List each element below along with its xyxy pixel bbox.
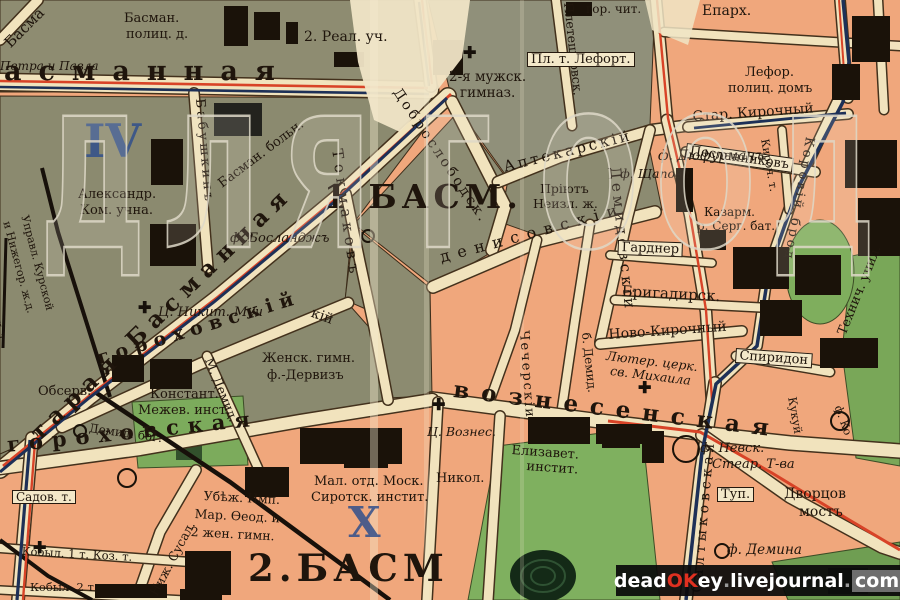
district-label-2-basm: 2.БАСМ bbox=[248, 550, 449, 587]
poi-lefort-theatre: Пл. т. Лефорт. bbox=[527, 52, 635, 67]
watermark-letter: О bbox=[655, 96, 756, 276]
poi-dvortsovy-bridge-2: мостъ bbox=[799, 505, 843, 519]
church-cross-icon: ✚ bbox=[138, 300, 151, 316]
poi-mezhevoy-institute-2: Межев. инст. bbox=[138, 404, 230, 417]
poi-dervis-gymnasium-2: ф.-Дервизъ bbox=[267, 369, 344, 382]
watermark-letter: Д bbox=[40, 96, 146, 276]
church-cross-icon: ✚ bbox=[463, 45, 476, 61]
credit-tld: com bbox=[852, 570, 900, 592]
credit-text: dead bbox=[614, 570, 667, 592]
watermark-letter: О bbox=[538, 96, 639, 276]
poi-kobyl-2: Кобыл. 2 т. bbox=[30, 582, 98, 594]
poi-real-school: 2. Реал. уч. bbox=[304, 30, 388, 44]
poi-nikita-church: Ц. Никит. Муч bbox=[158, 306, 263, 319]
church-cross-icon: ✚ bbox=[638, 380, 651, 396]
street-label-tupik: Туп. bbox=[717, 487, 754, 502]
poi-sadovaya: Садов. т. bbox=[12, 490, 76, 504]
district-numeral-x: X bbox=[348, 502, 381, 544]
poi-nevsky-stearin-1: ф. Невск. bbox=[700, 442, 764, 455]
credit-watermark: deadOKey.livejournal.com bbox=[616, 565, 900, 596]
watermark-letter: Я bbox=[280, 96, 371, 276]
poi-city-reading-room: гор. чит. bbox=[586, 3, 641, 15]
church-cross-icon: ✚ bbox=[33, 540, 46, 556]
watermark-letter: Г bbox=[416, 96, 492, 276]
poi-basmannaya-police-2: полиц. д. bbox=[126, 28, 188, 41]
poi-observatory: Обсерв. bbox=[38, 385, 91, 398]
poi-demin-factory: ф. Демина bbox=[727, 544, 802, 558]
watermark-letter: Л bbox=[162, 96, 261, 276]
poi-mezhevoy-institute-1: Констант. bbox=[150, 388, 219, 401]
poi-nevsky-stearin-2: Стеар. Т-ва bbox=[712, 458, 795, 471]
poi-eparkh: Епарх. bbox=[702, 4, 751, 18]
watermark-letter: Д bbox=[770, 96, 876, 276]
credit-accent: OK bbox=[667, 570, 698, 592]
map: асманная тарая Басманная гороховская гор… bbox=[0, 0, 900, 600]
poi-dvortsovy-bridge-1: Дворцов bbox=[784, 487, 846, 501]
poi-orphan-institute-1: Мал. отд. Моск. bbox=[314, 475, 424, 488]
poi-lefortovo-police-1: Лефор. bbox=[745, 66, 794, 79]
church-cross-icon: ✚ bbox=[432, 397, 445, 413]
poi-nikol: Никол. bbox=[436, 472, 484, 485]
poi-petra-i-pavla: Петра и Павла bbox=[0, 60, 99, 72]
poi-elizavetinsky-2: инстит. bbox=[526, 460, 579, 477]
poi-basmannaya-police-1: Басман. bbox=[124, 12, 179, 25]
poi-dervis-gymnasium-1: Женск. гимн. bbox=[262, 352, 355, 365]
poi-voznesenie-church: Ц. Вознес. bbox=[427, 426, 496, 439]
